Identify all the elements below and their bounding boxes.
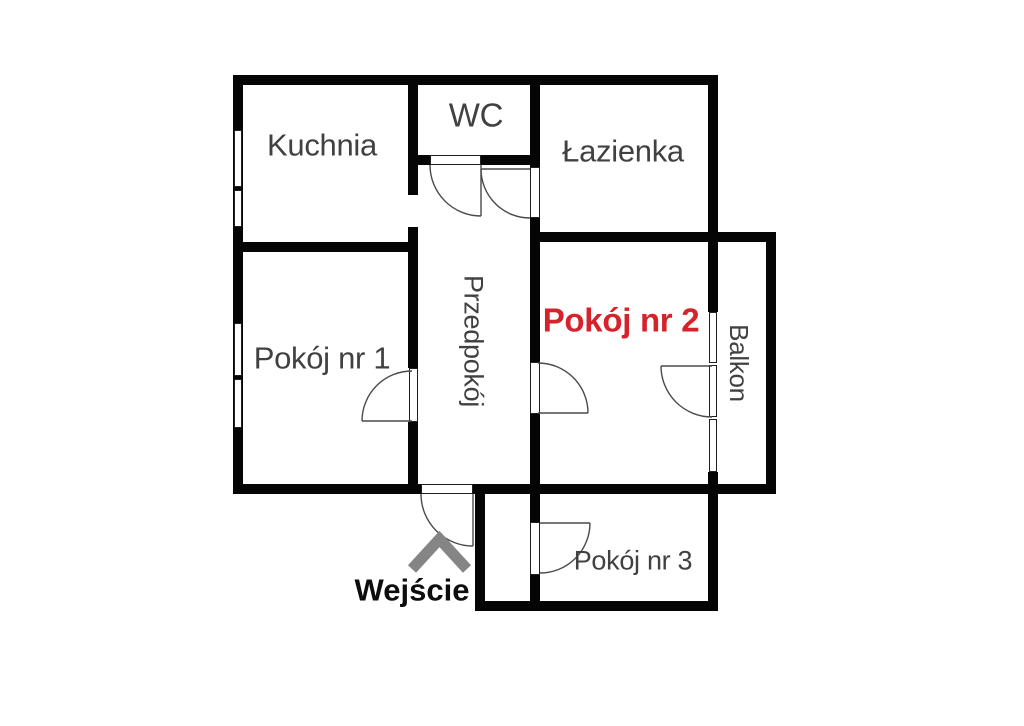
label-wejscie: Wejście (355, 575, 470, 606)
entrance-door-arc (421, 494, 473, 546)
label-wc: WC (449, 99, 503, 132)
floor-plan: Kuchnia WC Łazienka Pokój nr 1 Przedpokó… (0, 0, 1024, 726)
label-kuchnia: Kuchnia (267, 130, 377, 161)
label-pokoj1: Pokój nr 1 (254, 343, 391, 374)
lazienka-door-arc (481, 169, 530, 218)
door-swing-layer (0, 0, 1024, 726)
label-balkon: Balkon (726, 324, 752, 402)
pokoj2-door-arc (538, 363, 588, 413)
label-przedpokoj: Przedpokój (460, 275, 487, 407)
label-lazienka: Łazienka (562, 136, 684, 167)
label-pokoj3: Pokój nr 3 (574, 548, 693, 575)
wc-door-arc (430, 165, 481, 216)
balkon-door-arc (661, 366, 712, 417)
label-pokoj2: Pokój nr 2 (543, 304, 700, 337)
pokoj1-door-arc (362, 371, 412, 421)
